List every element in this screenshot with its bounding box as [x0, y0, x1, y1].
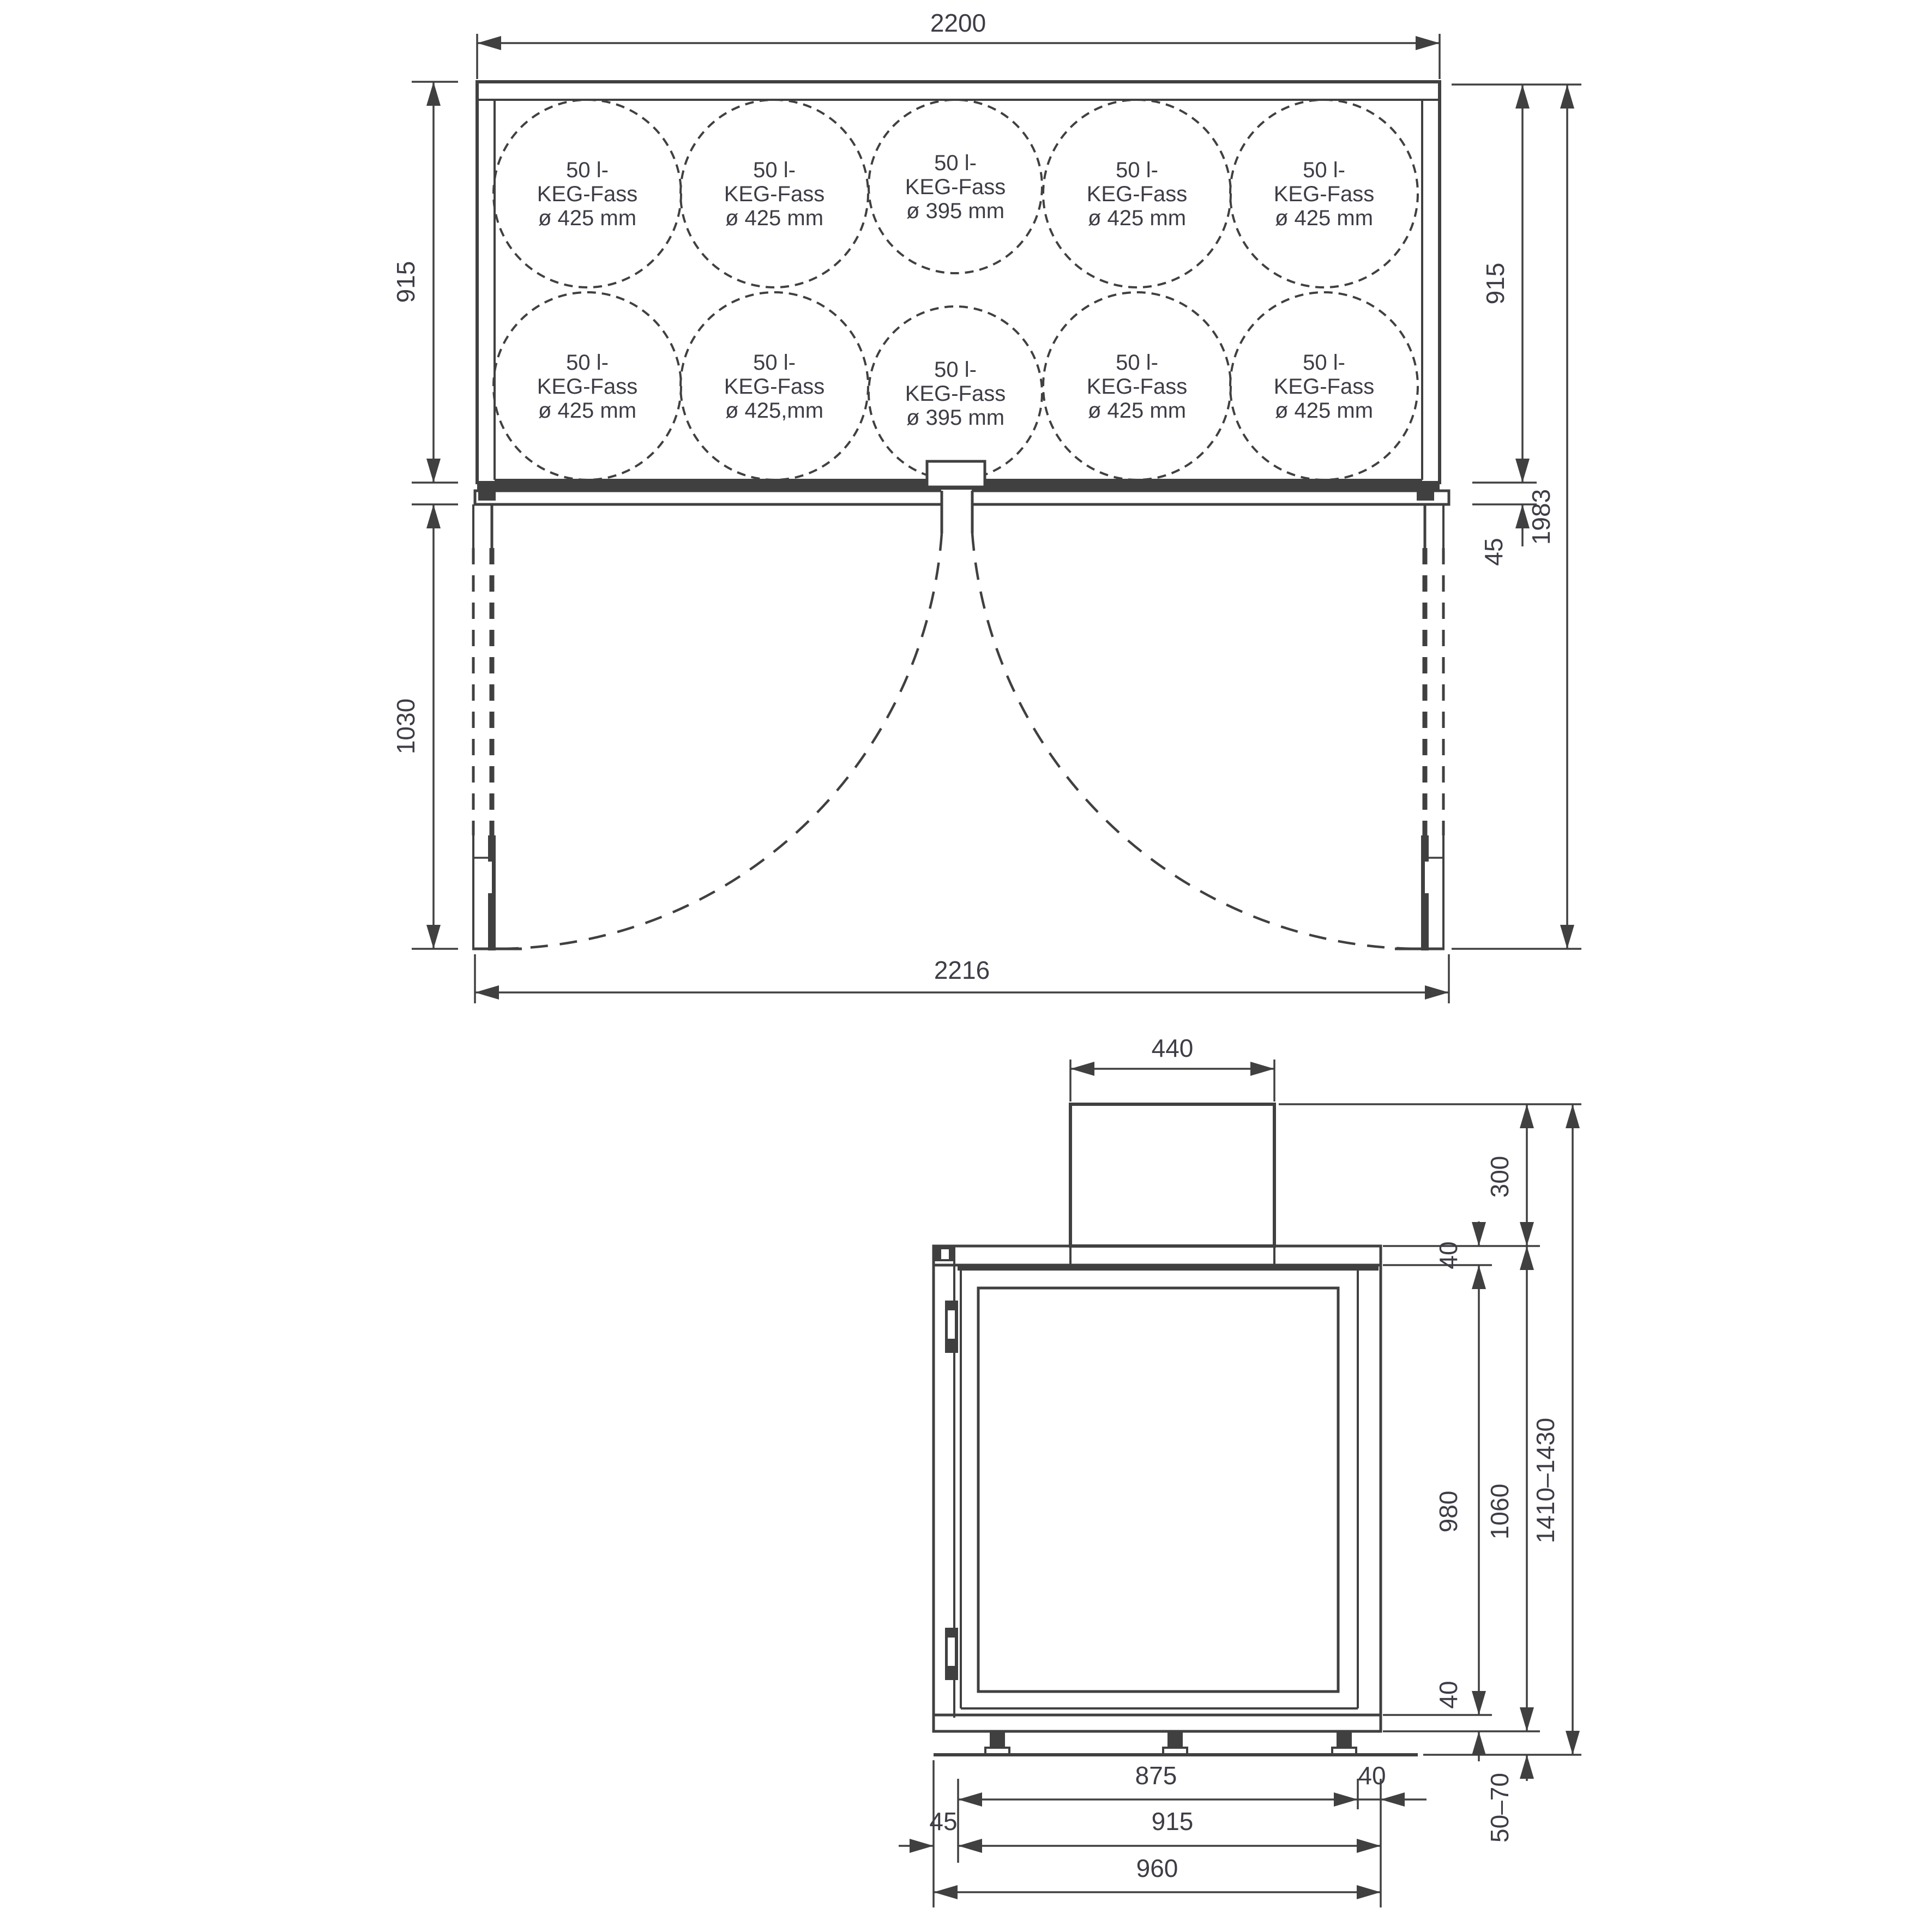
left-door-swing-arc [493, 533, 942, 949]
dim-label-2216: 2216 [934, 956, 990, 984]
keg-label-line: 50 l- [1116, 351, 1158, 375]
keg-label-line: ø 425 mm [538, 399, 636, 423]
dim-label-1060: 1060 [1485, 1484, 1514, 1539]
keg: 50 l-KEG-Fassø 425 mm [681, 100, 868, 287]
keg-label-line: KEG-Fass [724, 375, 824, 399]
keg: 50 l-KEG-Fassø 425,mm [681, 292, 868, 480]
dim-plan-door-swing-left: 1030 [392, 504, 458, 949]
keg-label-line: ø 425 mm [1088, 206, 1186, 230]
dim-side-bottom-widths: 875 40 45 915 960 [899, 1760, 1427, 1907]
keg-label-line: ø 395 mm [906, 406, 1004, 430]
plan-open-doors [472, 504, 1445, 950]
keg: 50 l-KEG-Fassø 425 mm [1043, 292, 1231, 480]
keg-label-line: ø 425 mm [725, 206, 823, 230]
technical-drawing-keg-cooler: 50 l-KEG-Fassø 425 mm50 l-KEG-Fassø 425 … [0, 0, 1932, 1932]
side-door-hinge-top [945, 1301, 958, 1353]
dim-label-960: 960 [1136, 1854, 1178, 1882]
foot-center [1163, 1731, 1187, 1755]
dim-label-50-70: 50–70 [1485, 1773, 1514, 1843]
right-door-hinge [1395, 835, 1445, 950]
keg: 50 l-KEG-Fassø 425 mm [1230, 100, 1418, 287]
keg-label-line: ø 425 mm [538, 206, 636, 230]
keg: 50 l-KEG-Fassø 425 mm [493, 100, 681, 287]
dim-label-1030: 1030 [392, 699, 420, 754]
keg-label-line: KEG-Fass [537, 182, 637, 206]
side-body [934, 1246, 1381, 1722]
dim-label-440: 440 [1152, 1034, 1194, 1062]
drawing-svg: 50 l-KEG-Fassø 425 mm50 l-KEG-Fassø 425 … [0, 0, 1932, 1932]
door-inner-frame [978, 1288, 1338, 1692]
keg-label-line: KEG-Fass [905, 382, 1006, 406]
keg-label-line: 50 l- [1116, 158, 1158, 182]
side-base-and-feet [934, 1715, 1418, 1755]
dim-plan-width-top: 2200 [477, 9, 1440, 79]
dim-label-45-right: 45 [1479, 538, 1508, 565]
dim-plan-depth-right: 915 [1452, 85, 1581, 483]
dim-label-915-right: 915 [1481, 263, 1509, 305]
dim-label-40-wall: 40 [1358, 1761, 1386, 1790]
dim-label-875: 875 [1135, 1761, 1177, 1790]
keg-label-line: KEG-Fass [1087, 182, 1187, 206]
keg: 50 l-KEG-Fassø 395 mm [869, 100, 1042, 273]
dim-label-1410-1430: 1410–1430 [1531, 1418, 1560, 1543]
keg-label-line: ø 425 mm [1088, 399, 1186, 423]
keg-label-line: KEG-Fass [905, 175, 1006, 199]
foot-right [1332, 1731, 1356, 1755]
keg: 50 l-KEG-Fassø 395 mm [869, 306, 1042, 480]
keg: 50 l-KEG-Fassø 425 mm [1230, 292, 1418, 480]
left-hinge-pivot [478, 484, 496, 501]
dim-label-980: 980 [1434, 1491, 1462, 1533]
dim-plan-width-bottom: 2216 [475, 954, 1449, 1003]
keg: 50 l-KEG-Fassø 425 mm [493, 292, 681, 480]
dim-label-45-door: 45 [929, 1807, 957, 1835]
side-door-hinge-bottom [945, 1628, 958, 1680]
keg-label-line: ø 425,mm [725, 399, 823, 423]
condenser-box [1070, 1104, 1274, 1246]
keg-label-line: KEG-Fass [1274, 375, 1374, 399]
dim-label-300: 300 [1485, 1156, 1514, 1198]
keg-label-line: KEG-Fass [724, 182, 824, 206]
plan-front-edge [475, 461, 1449, 533]
dim-plan-total-depth: 1983 [1452, 85, 1581, 949]
keg-label-line: 50 l- [934, 151, 977, 175]
side-lid [934, 1246, 1381, 1271]
dim-label-40-base: 40 [1434, 1681, 1462, 1708]
keg-label-line: 50 l- [753, 351, 796, 375]
keg-label-line: ø 425 mm [1275, 206, 1373, 230]
keg-label-line: 50 l- [1303, 158, 1345, 182]
keg-label-line: 50 l- [934, 358, 977, 382]
dim-label-915-left: 915 [392, 261, 420, 303]
right-hinge-pivot [1417, 484, 1434, 501]
dim-label-40-lid: 40 [1434, 1241, 1462, 1269]
keg-label-line: 50 l- [566, 351, 609, 375]
keg: 50 l-KEG-Fassø 425 mm [1043, 100, 1231, 287]
keg-label-line: 50 l- [1303, 351, 1345, 375]
side-view: 440 [899, 1034, 1581, 1907]
dim-label-2200: 2200 [930, 9, 986, 37]
dim-side-condenser-width: 440 [1070, 1034, 1274, 1102]
keg-layout: 50 l-KEG-Fassø 425 mm50 l-KEG-Fassø 425 … [493, 100, 1418, 480]
keg-label-line: KEG-Fass [1087, 375, 1187, 399]
keg-label-line: KEG-Fass [537, 375, 637, 399]
dim-label-915-bottom: 915 [1152, 1807, 1194, 1835]
door-lock-handle [927, 461, 985, 487]
right-door-swing-arc [972, 533, 1423, 949]
plan-view: 50 l-KEG-Fassø 425 mm50 l-KEG-Fassø 425 … [392, 9, 1581, 1003]
keg-label-line: ø 395 mm [906, 199, 1004, 223]
keg-label-line: ø 425 mm [1275, 399, 1373, 423]
keg-label-line: 50 l- [566, 158, 609, 182]
left-door-hinge [472, 835, 522, 950]
dim-label-1983: 1983 [1527, 489, 1555, 545]
dim-plan-depth-left: 915 [392, 82, 458, 483]
keg-label-line: 50 l- [753, 158, 796, 182]
keg-label-line: KEG-Fass [1274, 182, 1374, 206]
foot-left [985, 1731, 1009, 1755]
